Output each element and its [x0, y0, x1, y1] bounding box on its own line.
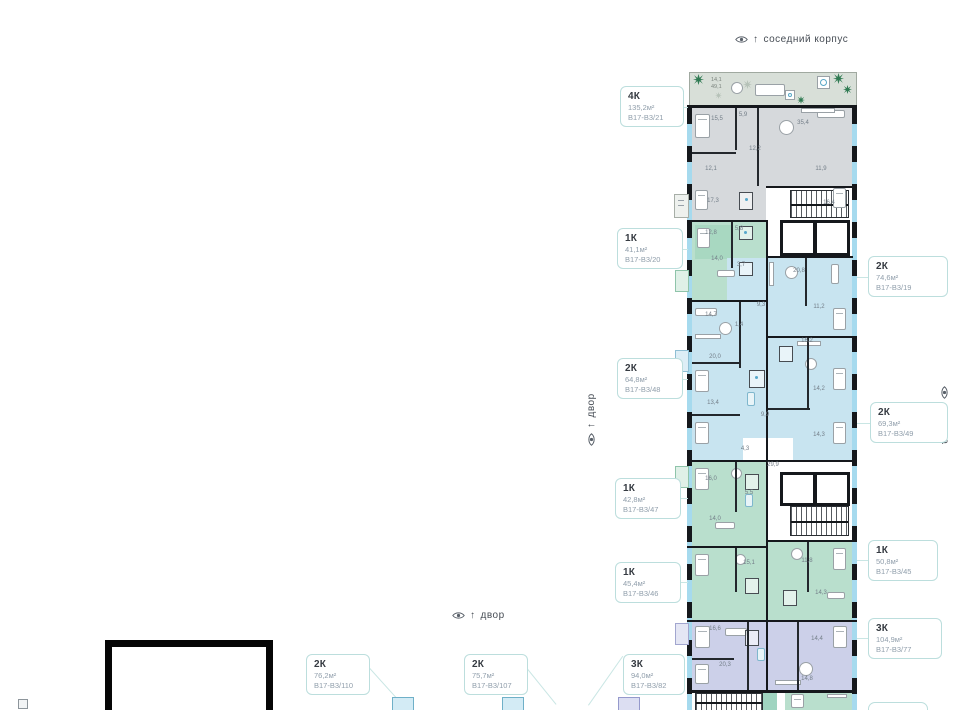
unit-code: В17-В3/47	[623, 505, 673, 514]
room-area-label: 15,1	[743, 560, 755, 566]
furniture	[833, 548, 846, 570]
street-direction: ↑ улица	[950, 386, 960, 397]
room-area-label: 11,2	[813, 304, 824, 310]
furniture	[695, 190, 708, 210]
unit-area: 42,8м²	[623, 495, 673, 504]
unit-code: В17-В3/46	[623, 589, 673, 598]
unit-number-badge[interactable]	[502, 697, 524, 710]
furniture	[827, 592, 845, 599]
staircase	[695, 693, 763, 710]
furniture	[785, 90, 795, 100]
unit-rooms-count: 4К	[628, 91, 676, 102]
room-area-label: 20,3	[719, 662, 731, 668]
furniture	[695, 554, 709, 576]
room-area-label: 14,8	[801, 676, 813, 682]
furniture	[731, 468, 742, 479]
room-area-label: 11,9	[815, 166, 826, 172]
room-area-label: 14,3	[815, 590, 827, 596]
unit-number-badge[interactable]	[618, 697, 640, 710]
staircase	[790, 506, 849, 536]
unit-rooms-count: 1К	[623, 567, 673, 578]
unit-wall	[766, 186, 853, 188]
furniture	[695, 626, 710, 648]
elevator-shaft	[814, 472, 850, 506]
unit-code: В17-В3/49	[878, 429, 940, 438]
unit-label[interactable]: 1К 50,8м² В17-В3/45	[868, 540, 938, 581]
unit-rooms-count: 2К	[472, 659, 520, 670]
leader-line	[857, 423, 870, 424]
furniture	[749, 370, 765, 388]
room-area-label: 20,8	[793, 268, 805, 274]
building-plan: 14,149,1	[687, 70, 857, 710]
furniture	[755, 84, 785, 96]
room-area-label: 5,9	[739, 112, 747, 118]
room-area-label: 5,8	[735, 226, 743, 232]
unit-area: 74,6м²	[876, 273, 940, 282]
room-area-label: 35,4	[797, 120, 809, 126]
balcony-marker	[675, 270, 689, 292]
unit-label[interactable]: 2К 74,6м² В17-В3/19	[868, 256, 948, 297]
unit-rooms-count: 1К	[623, 483, 673, 494]
eye-icon	[452, 611, 465, 620]
partition-wall	[739, 302, 741, 368]
yard-left-text: двор	[586, 393, 597, 417]
unit-label[interactable]: 4К 135,2м² В17-В3/21	[620, 86, 684, 127]
unit-area: 64,8м²	[625, 375, 675, 384]
room-area-label: 1,4	[735, 322, 743, 328]
partition-wall	[797, 622, 799, 690]
elevator-shaft	[780, 220, 816, 256]
unit-label[interactable]: 3К 104,9м² В17-В3/77	[868, 618, 942, 659]
room-area-label: 12,1	[705, 166, 717, 172]
furniture	[695, 664, 709, 684]
unit-wall	[766, 222, 768, 692]
unit-wall	[687, 690, 857, 693]
partition-wall	[735, 462, 737, 512]
unit-label-partial[interactable]	[868, 702, 928, 710]
unit-wall	[766, 256, 853, 258]
furniture	[791, 694, 804, 708]
unit-code: В17-В3/48	[625, 385, 675, 394]
furniture	[817, 76, 830, 89]
unit-label[interactable]: 1К 41,1м² В17-В3/20	[617, 228, 683, 269]
partition-wall	[807, 542, 809, 592]
room-area-label: 12,2	[749, 146, 761, 152]
unit-code: В17-В3/107	[472, 681, 520, 690]
tree-icon	[693, 74, 704, 85]
room-area-label: 16,6	[709, 626, 721, 632]
leader-line	[857, 638, 868, 639]
furniture	[745, 474, 759, 490]
unit-area: 45,4м²	[623, 579, 673, 588]
room-area-label: 14,0	[711, 256, 723, 262]
neighbor-direction-label: ↑ соседний корпус	[735, 34, 848, 45]
yard-bottom-direction: ↑ двор	[452, 610, 505, 621]
furniture	[779, 120, 794, 135]
furniture	[695, 370, 709, 392]
neighbor-building-outline	[105, 640, 273, 710]
yard-left-direction: ↑ двор	[586, 446, 639, 457]
partition-wall	[747, 622, 749, 690]
partition-wall	[807, 338, 809, 408]
unit-area: 69,3м²	[878, 419, 940, 428]
furniture	[747, 392, 755, 406]
unit-wall	[766, 540, 853, 542]
corridor	[743, 438, 793, 460]
unit-rooms-count: 2К	[625, 363, 675, 374]
room-area-label: 14,7	[705, 312, 717, 318]
room-area-label: 3,7	[737, 262, 745, 268]
room-area-label: 14,2	[813, 386, 825, 392]
furniture	[833, 308, 846, 330]
furniture	[695, 422, 709, 444]
yard-bottom-text: двор	[481, 610, 505, 621]
partition-wall	[735, 548, 737, 592]
room-area-label: 29,9	[767, 462, 779, 468]
unit-area: 104,9м²	[876, 635, 934, 644]
unit-rooms-count: 3К	[876, 623, 934, 634]
furniture	[745, 198, 748, 201]
unit-rooms-count: 3К	[631, 659, 677, 670]
partition-wall	[692, 414, 740, 416]
unit-code: В17-В3/110	[314, 681, 362, 690]
room-area-label: 16,4	[823, 200, 835, 206]
elevator-shaft	[814, 220, 850, 256]
unit-number-badge[interactable]	[392, 697, 414, 710]
room-area-label: 5,5	[745, 490, 753, 496]
up-arrow-icon: ↑	[470, 610, 476, 621]
furniture	[739, 192, 753, 210]
leader-line	[857, 560, 868, 561]
unit-area: 50,8м²	[876, 557, 930, 566]
unit-wall	[687, 620, 857, 622]
unit-code: В17-В3/45	[876, 567, 930, 576]
balcony-marker	[674, 194, 689, 218]
partition-wall	[805, 258, 807, 306]
unit-wall	[687, 546, 768, 548]
room-area-label: 15,5	[711, 116, 723, 122]
unit-area: 76,2м²	[314, 671, 362, 680]
site-marker	[18, 699, 28, 709]
zone-unit-3k-77[interactable]	[692, 622, 852, 690]
unit-code: В17-В3/19	[876, 283, 940, 292]
unit-area: 75,7м²	[472, 671, 520, 680]
furniture	[725, 628, 747, 636]
unit-label[interactable]: 2К 76,2м² В17-В3/110	[306, 654, 370, 695]
room-area-label: 14,3	[813, 432, 825, 438]
exterior-wall	[687, 105, 857, 108]
terrace-area-label: 14,1	[711, 77, 722, 83]
unit-label[interactable]: 1К 45,4м² В17-В3/46	[615, 562, 681, 603]
room-area-label: 11,8	[801, 558, 812, 564]
furniture	[744, 231, 747, 234]
unit-code: В17-В3/77	[876, 645, 934, 654]
room-area-label: 16,0	[705, 476, 717, 482]
unit-code: В17-В3/82	[631, 681, 677, 690]
unit-rooms-count: 1К	[625, 233, 675, 244]
unit-label[interactable]: 3К 94,0м² В17-В3/82	[623, 654, 685, 695]
room-area-label: 9,9	[761, 412, 769, 418]
partition-wall	[692, 152, 736, 154]
floorplan-canvas: ↑ соседний корпус ↑ двор ↑ улица ↑ двор …	[0, 0, 960, 710]
furniture	[783, 590, 797, 606]
unit-area: 135,2м²	[628, 103, 676, 112]
partition-wall	[731, 222, 733, 268]
unit-area: 41,1м²	[625, 245, 675, 254]
up-arrow-icon: ↑	[753, 34, 759, 45]
partition-wall	[692, 658, 734, 660]
unit-area: 94,0м²	[631, 671, 677, 680]
tree-icon	[797, 96, 805, 104]
unit-label[interactable]: 2К 64,8м² В17-В3/48	[617, 358, 683, 399]
tree-icon	[833, 73, 844, 84]
room-area-label: 12,8	[705, 230, 717, 236]
furniture	[695, 114, 710, 138]
partition-wall	[692, 362, 740, 364]
furniture	[833, 626, 847, 648]
furniture	[769, 262, 774, 286]
furniture	[695, 334, 721, 339]
furniture	[715, 522, 735, 529]
eye-icon	[735, 35, 748, 44]
partition-wall	[768, 408, 810, 410]
balcony-marker	[675, 623, 689, 645]
furniture	[755, 376, 758, 379]
furniture	[801, 108, 835, 113]
room-area-label: 14,0	[709, 516, 721, 522]
unit-rooms-count: 2К	[878, 407, 940, 418]
furniture	[717, 270, 735, 277]
room-area-label: 9,3	[757, 302, 765, 308]
furniture	[799, 662, 813, 676]
unit-code: В17-В3/21	[628, 113, 676, 122]
room-area-label: 4,3	[741, 446, 749, 452]
tree-icon	[715, 92, 722, 99]
unit-rooms-count: 2К	[876, 261, 940, 272]
eye-icon	[587, 433, 596, 446]
furniture	[745, 578, 759, 594]
furniture	[831, 264, 839, 284]
terrace-area-label: 49,1	[711, 84, 722, 90]
furniture	[779, 346, 793, 362]
furniture	[833, 368, 846, 390]
room-area-label: 17,3	[707, 198, 719, 204]
tree-icon	[843, 85, 852, 94]
leader-line	[857, 277, 868, 278]
up-arrow-icon: ↑	[586, 423, 597, 429]
room-area-label: 13,4	[707, 400, 719, 406]
unit-code: В17-В3/20	[625, 255, 675, 264]
unit-label[interactable]: 2К 75,7м² В17-В3/107	[464, 654, 528, 695]
unit-label[interactable]: 2К 69,3м² В17-В3/49	[870, 402, 948, 443]
eye-icon	[940, 386, 949, 399]
room-area-label: 16,2	[801, 338, 813, 344]
room-area-label: 20,0	[709, 354, 721, 360]
unit-label[interactable]: 1К 42,8м² В17-В3/47	[615, 478, 681, 519]
unit-rooms-count: 2К	[314, 659, 362, 670]
elevator-shaft	[780, 472, 816, 506]
furniture	[757, 648, 765, 661]
neighbor-label-text: соседний корпус	[764, 34, 849, 45]
room-area-label: 14,4	[811, 636, 823, 642]
furniture	[833, 422, 846, 444]
partition-wall	[735, 108, 737, 150]
unit-wall	[687, 220, 768, 222]
unit-rooms-count: 1К	[876, 545, 930, 556]
tree-icon	[743, 80, 752, 89]
furniture	[827, 694, 847, 698]
